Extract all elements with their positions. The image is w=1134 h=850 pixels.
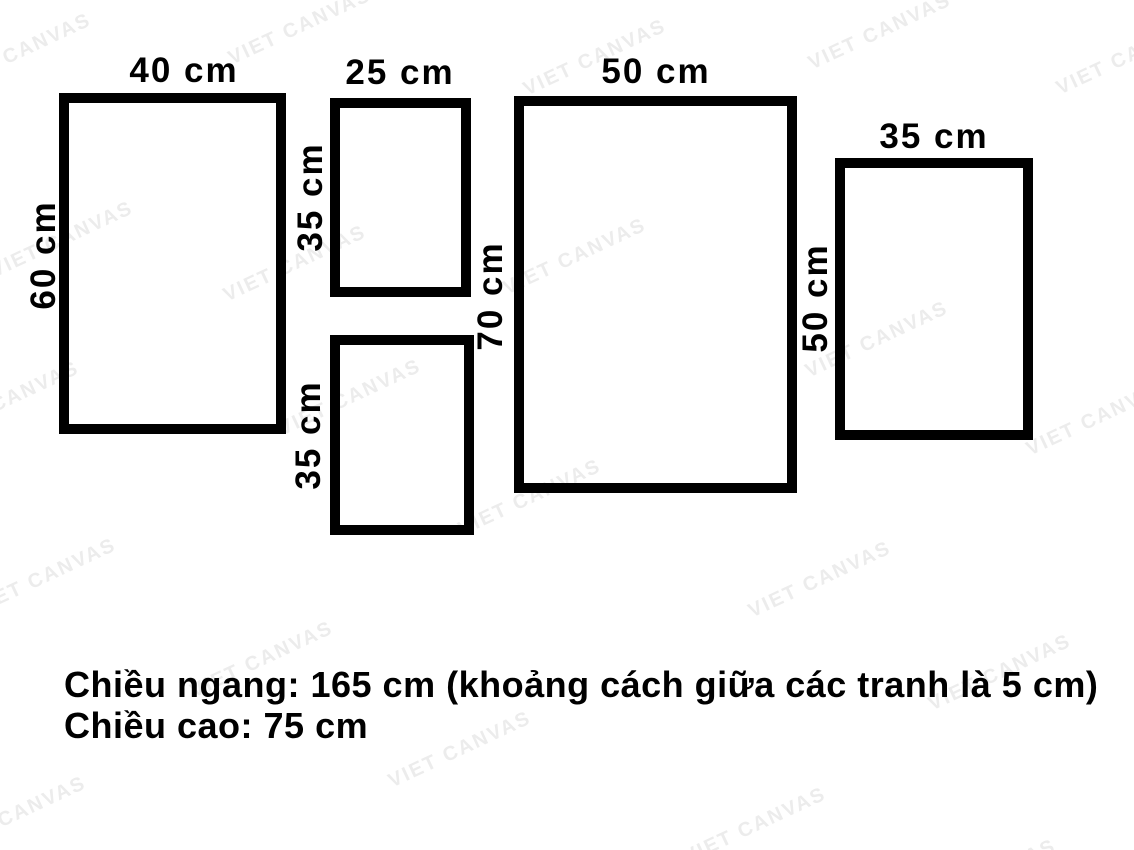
summary-line-horizontal: Chiều ngang: 165 cm (khoảng cách giữa cá… <box>64 664 1098 705</box>
watermark: VIET CANVAS <box>0 534 120 620</box>
frame2-width-label: 25 cm <box>345 53 454 93</box>
frame1-width-label: 40 cm <box>129 51 238 91</box>
summary-line-vertical: Chiều cao: 75 cm <box>64 705 1098 746</box>
frame4-height-label: 70 cm <box>471 241 511 350</box>
frame1-height-label: 60 cm <box>24 200 64 309</box>
frame5-height-label: 50 cm <box>796 243 836 352</box>
dimensions-summary: Chiều ngang: 165 cm (khoảng cách giữa cá… <box>64 664 1098 746</box>
watermark: VIET CANVAS <box>680 783 830 850</box>
watermark: VIET CANVAS <box>0 772 90 850</box>
watermark: VIET CANVAS <box>805 0 955 75</box>
frame2-height-label: 35 cm <box>291 142 331 251</box>
watermark: VIET CANVAS <box>0 9 95 95</box>
watermark: VIET CANVAS <box>745 537 895 623</box>
frame-layout-diagram: VIET CANVAS VIET CANVAS VIET CANVAS VIET… <box>0 0 1134 850</box>
frame4-width-label: 50 cm <box>601 52 710 92</box>
frame-outline-35x50 <box>835 158 1033 440</box>
frame3-height-label: 35 cm <box>289 380 329 489</box>
frame-outline-50x70 <box>514 96 797 493</box>
watermark: VIET CANVAS <box>1053 14 1134 100</box>
watermark: VIET CANVAS <box>1023 375 1134 461</box>
frame-outline-40x60 <box>59 93 286 434</box>
frame-outline-25x35-lower <box>330 335 474 535</box>
frame-outline-25x35 <box>330 98 471 297</box>
frame5-width-label: 35 cm <box>879 117 988 157</box>
watermark: VIET CANVAS <box>910 835 1060 850</box>
